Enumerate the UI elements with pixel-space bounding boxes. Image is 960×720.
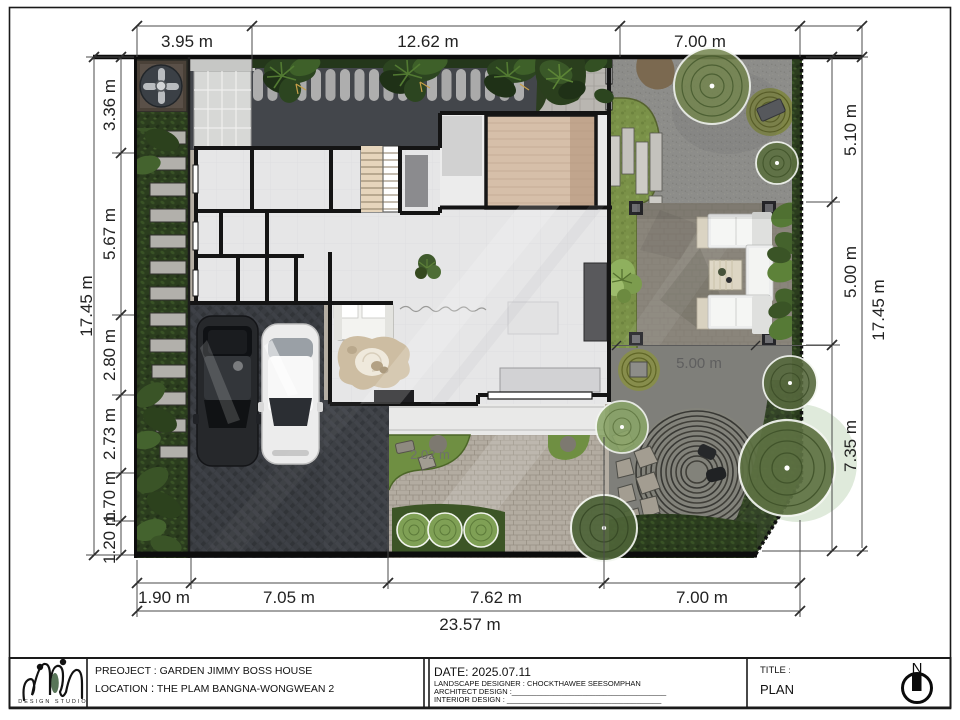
svg-text:3.95 m: 3.95 m xyxy=(161,32,213,51)
svg-text:12.62 m: 12.62 m xyxy=(397,32,458,51)
svg-text:TITLE :: TITLE : xyxy=(760,665,791,676)
svg-text:5.10 m: 5.10 m xyxy=(841,104,860,156)
svg-text:7.35 m: 7.35 m xyxy=(841,420,860,472)
svg-text:7.62 m: 7.62 m xyxy=(470,588,522,607)
svg-text:5.67 m: 5.67 m xyxy=(100,208,119,260)
svg-text:5.00 m: 5.00 m xyxy=(841,246,860,298)
svg-text:DATE: 2025.07.11: DATE: 2025.07.11 xyxy=(434,665,531,679)
svg-text:1.20 m: 1.20 m xyxy=(100,512,119,564)
svg-text:LOCATION : THE PLAM BANGNA-WON: LOCATION : THE PLAM BANGNA-WONGWEAN 2 xyxy=(95,681,334,695)
svg-text:2.02 m: 2.02 m xyxy=(410,447,450,462)
svg-text:N: N xyxy=(912,660,923,677)
svg-text:PLAN: PLAN xyxy=(760,682,794,697)
svg-text:PREOJECT : GARDEN JIMMY BOSS H: PREOJECT : GARDEN JIMMY BOSS HOUSE xyxy=(95,665,312,677)
svg-text:INTERIOR DESIGN : ____________: INTERIOR DESIGN : ______________________… xyxy=(434,695,662,704)
svg-text:2.73 m: 2.73 m xyxy=(100,408,119,460)
svg-text:7.00 m: 7.00 m xyxy=(676,588,728,607)
svg-text:17.45 m: 17.45 m xyxy=(869,279,888,340)
svg-text:2.80 m: 2.80 m xyxy=(100,329,119,381)
svg-text:DESIGN STUDIO: DESIGN STUDIO xyxy=(18,699,87,705)
svg-text:17.45 m: 17.45 m xyxy=(77,275,96,336)
svg-text:1.90 m: 1.90 m xyxy=(138,588,190,607)
svg-text:7.05 m: 7.05 m xyxy=(263,588,315,607)
svg-text:23.57 m: 23.57 m xyxy=(439,615,500,634)
svg-text:5.00 m: 5.00 m xyxy=(676,355,722,372)
svg-text:3.36 m: 3.36 m xyxy=(100,79,119,131)
svg-text:7.00 m: 7.00 m xyxy=(674,32,726,51)
